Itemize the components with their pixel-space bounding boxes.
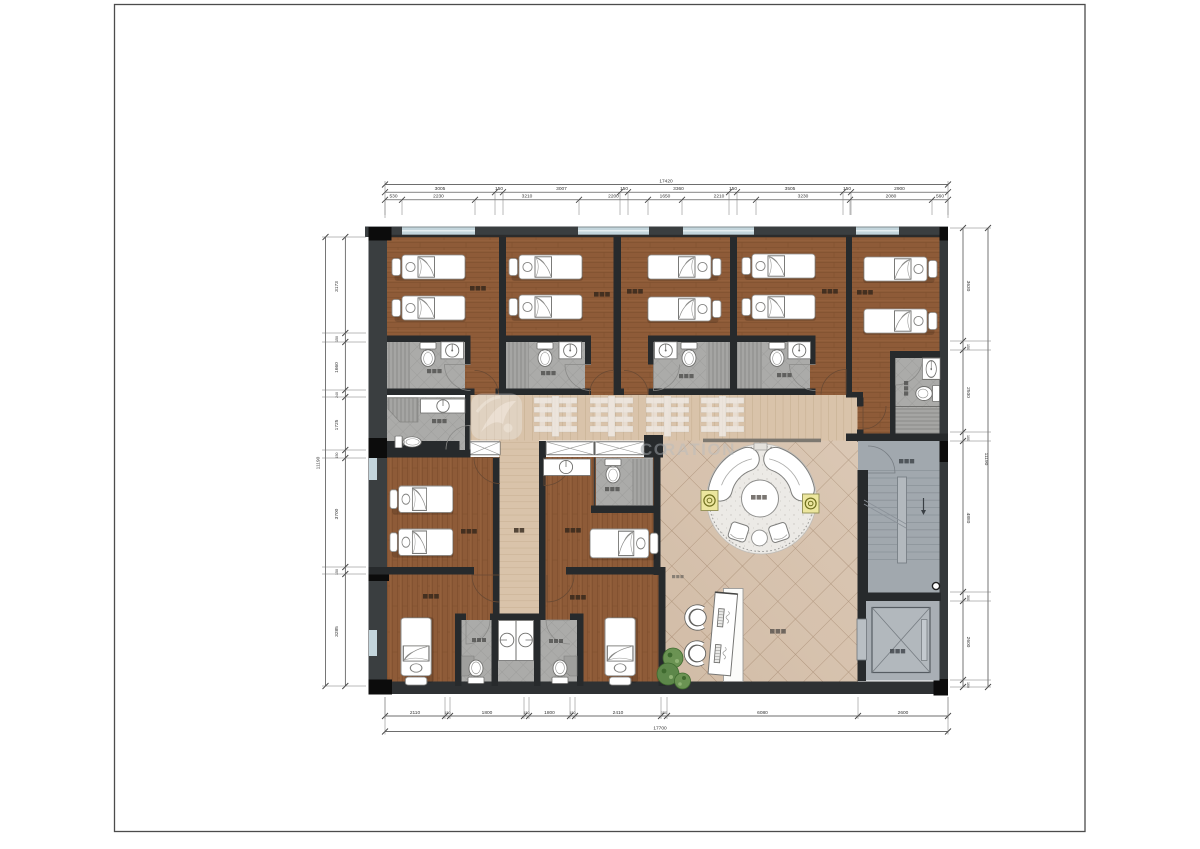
svg-text:1660: 1660 — [334, 362, 340, 373]
svg-text:RATION: RATION — [663, 440, 736, 459]
svg-text:6080: 6080 — [757, 710, 768, 716]
svg-text:3630: 3630 — [965, 281, 971, 292]
svg-text:100: 100 — [966, 435, 970, 441]
svg-text:3360: 3360 — [673, 186, 684, 192]
svg-text:300: 300 — [966, 595, 970, 601]
svg-text:150: 150 — [570, 711, 576, 715]
svg-text:11190: 11190 — [983, 453, 989, 466]
svg-text:1650: 1650 — [660, 194, 671, 200]
svg-text:3210: 3210 — [522, 194, 533, 200]
svg-text:150: 150 — [620, 186, 628, 192]
svg-text:150: 150 — [524, 711, 530, 715]
svg-text:150: 150 — [445, 711, 451, 715]
svg-text:150: 150 — [729, 186, 737, 192]
svg-text:150: 150 — [335, 336, 339, 342]
svg-text:3007: 3007 — [556, 186, 567, 192]
svg-text:2230: 2230 — [433, 194, 444, 200]
svg-text:3505: 3505 — [785, 186, 796, 192]
svg-text:3005: 3005 — [435, 186, 446, 192]
svg-text:2600: 2600 — [898, 710, 909, 716]
svg-text:17700: 17700 — [653, 725, 667, 731]
svg-text:150: 150 — [843, 186, 851, 192]
svg-text:2080: 2080 — [886, 194, 897, 200]
svg-text:2410: 2410 — [613, 710, 624, 716]
svg-text:1725: 1725 — [334, 419, 340, 430]
svg-text:3700: 3700 — [334, 508, 340, 519]
svg-text:3173: 3173 — [334, 281, 340, 292]
svg-text:1800: 1800 — [544, 710, 555, 716]
svg-text:2200: 2200 — [608, 194, 619, 200]
svg-text:150: 150 — [335, 453, 339, 459]
svg-text:1800: 1800 — [482, 710, 493, 716]
svg-text:150: 150 — [495, 186, 503, 192]
svg-text:2210: 2210 — [714, 194, 725, 200]
svg-text:2600: 2600 — [965, 637, 971, 648]
svg-text:17420: 17420 — [659, 178, 673, 184]
svg-text:530: 530 — [389, 194, 397, 200]
svg-text:2500: 2500 — [965, 387, 971, 398]
svg-text:2110: 2110 — [410, 710, 421, 716]
svg-text:3230: 3230 — [798, 194, 809, 200]
svg-text:3285: 3285 — [334, 626, 340, 637]
svg-text:150: 150 — [966, 344, 970, 350]
svg-text:2900: 2900 — [894, 186, 905, 192]
svg-text:4880: 4880 — [965, 513, 971, 524]
svg-text:11190: 11190 — [316, 456, 322, 469]
svg-text:560: 560 — [936, 194, 944, 200]
svg-text:150: 150 — [661, 711, 667, 715]
